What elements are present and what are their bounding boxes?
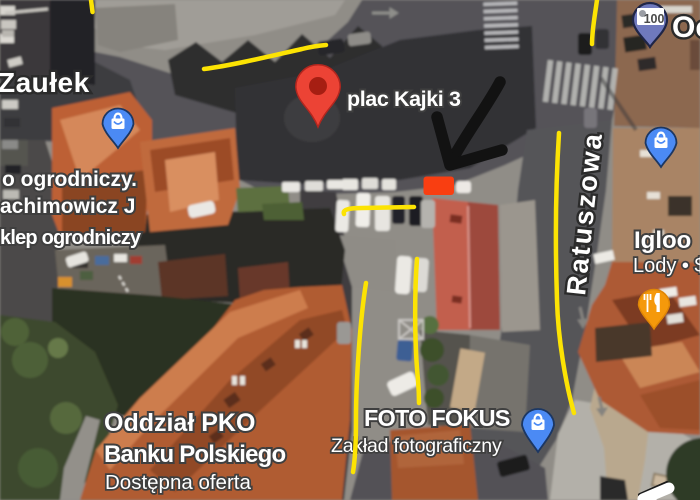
svg-text:plac Kajki 3: plac Kajki 3 <box>347 87 461 111</box>
svg-text:Oddział PKO: Oddział PKO <box>104 409 255 437</box>
svg-text:Zaułek: Zaułek <box>0 67 90 98</box>
svg-text:Lody • $: Lody • $ <box>633 255 700 277</box>
svg-text:Banku Polskiego: Banku Polskiego <box>104 441 286 468</box>
svg-text:Dostępna oferta: Dostępna oferta <box>105 471 251 494</box>
svg-text:klep ogrodniczy: klep ogrodniczy <box>0 227 142 249</box>
svg-text:FOTO FOKUS: FOTO FOKUS <box>364 405 510 431</box>
svg-text:o ogrodniczy.: o ogrodniczy. <box>2 168 137 191</box>
svg-text:achimowicz J: achimowicz J <box>0 195 135 218</box>
svg-text:100: 100 <box>644 12 665 26</box>
svg-text:Oc: Oc <box>672 11 700 44</box>
svg-text:Igloo: Igloo <box>634 227 691 254</box>
